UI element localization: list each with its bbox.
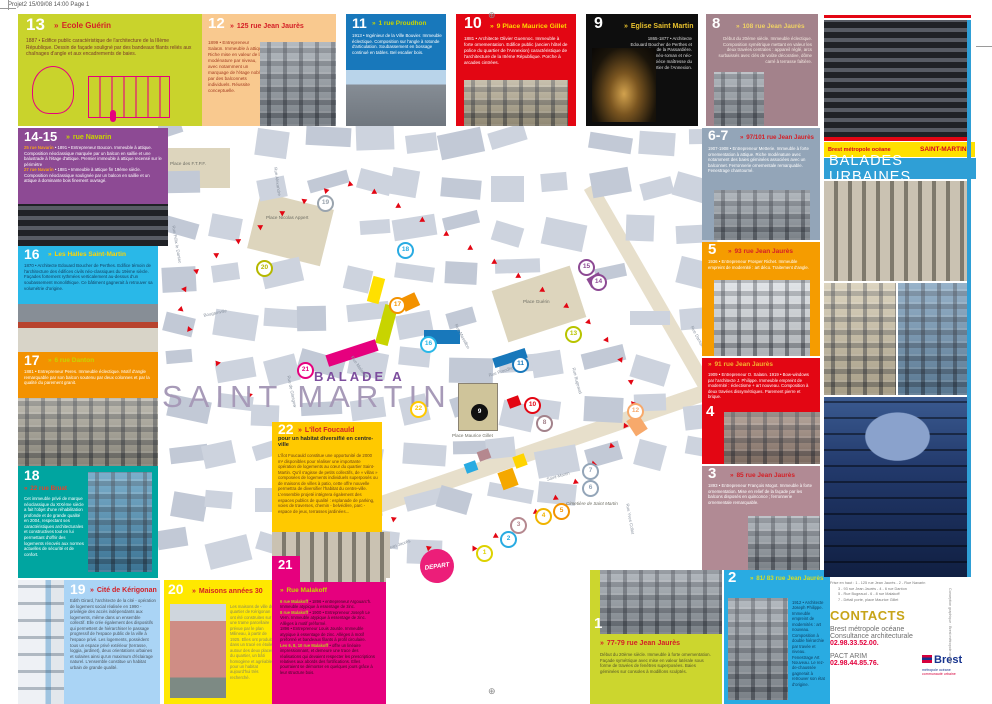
street-map: BALADE A SAINT MARTIN DEPART Rue Jean Ja… [158,125,724,587]
map-marker-1: 1 [476,545,493,562]
tile-title: » 22 rue Bruat [24,486,67,493]
building-photo [346,70,446,126]
tile-number: 6-7 [708,128,728,142]
tile-number: 4 [706,404,714,419]
map-marker-15: 15 [578,259,595,276]
map-building-block [491,176,524,202]
map-building-block [211,262,240,283]
map-building-block [360,219,391,235]
tile-title: » 125 rue Jean Jaurès [230,23,332,30]
route-arrow-icon [628,380,634,386]
map-building-block [437,127,485,161]
map-building-block [165,349,192,364]
map-building-block [402,443,446,467]
building-photo [18,580,64,704]
map-building-block [440,177,482,199]
route-arrow-icon [178,305,185,311]
series-label: BALADES URBAINES [829,153,976,185]
place-label: Cimetière de Saint Martin [566,501,624,507]
contacts-phone: 02.98.33.52.00. [830,640,913,647]
map-marker-19: 19 [317,195,334,212]
tile-5-93-rue-jean-jaures: 5 » 93 rue Jean Jaurès 1936 • Entreprene… [702,242,820,356]
title-marker-icon: » [624,23,628,30]
tile-11-1-rue-proudhon: 11 » 1 rue Proudhon 1913 • Ingénieur de … [346,14,446,126]
tile-17-6-rue-danton: 17 » 6 rue Danton 1881 • Entrepreneur Pe… [18,352,158,398]
tile-body: 1893 • Entrepreneur François Mogot. Imme… [708,483,814,505]
map-building-block [445,306,476,329]
tile-title: » Ecole Guérin [54,22,111,30]
map-marker-13: 13 [565,326,582,343]
tile-9-eglise-saint-martin: 9 » Eglise Saint Martin 1865-1877 • Arch… [586,14,698,126]
title-marker-icon: » [600,640,604,647]
tile-body: Début du 20ème siècle. Immeuble éclectiq… [716,36,812,65]
map-building-block [263,308,300,328]
building-photo [728,598,788,700]
title-marker-icon: » [490,23,494,30]
map-building-block [541,217,588,252]
tile-18-22-rue-bruat: 18 » 22 rue Bruat Cet immeuble privé de … [18,466,158,578]
map-marker-17: 17 [389,297,406,314]
tile-body: 1881 • Entrepreneur Peres. Immeuble écle… [24,369,154,386]
tile-title-text: L'îlot Foucauld [305,427,355,434]
series-banner: BALADES URBAINES [824,158,976,179]
title-marker-icon: » [740,134,743,141]
map-marker-10: 10 [524,397,541,414]
tile-3-85-rue-jean-jaures: 3 » 85 rue Jean Jaurès 1893 • Entreprene… [702,466,820,570]
tile-number: 21 [278,558,292,571]
tile-body: 1913 • Ingénieur de la Ville Bouvier. Im… [352,33,442,56]
building-photo [724,412,820,464]
map-marker-5: 5 [553,503,570,520]
tile-title: » Eglise Saint Martin [624,23,693,30]
map-marker-21: 21 [297,362,314,379]
place-label: Place des F.T.P.F. [170,161,230,167]
route-arrow-icon [348,181,355,188]
map-building-block [639,176,674,201]
tile-body: 1909 • Entrepreneur O. Salaün. 1919 • Bo… [708,372,814,400]
map-building-block [170,491,208,522]
tile-body: 25 rue Navarin • 1891 • Entrepreneur Bou… [24,145,162,184]
title-marker-icon: » [192,588,196,595]
tile-title-text: Maisons années 30 [199,588,263,595]
tile-title-text: 81/ 83 rue Jean Jaurès [756,575,823,582]
tile-20-maisons-annees-30: 20 » Maisons années 30 Les maisons de vi… [164,580,280,704]
tile-21-rue-malakoff: 21 » Rue Malakoff 6 rue Malakoff • 1896 … [272,556,386,704]
sketch-person-icon [110,110,116,122]
tile-body: L'îlot Foucauld constitue une opportunit… [278,453,378,514]
address-highlight: 6 rue Malakoff [280,599,308,604]
crop-mark [8,0,9,10]
route-arrow-icon [395,203,402,211]
building-photo [18,398,158,466]
tile-title: » Maisons années 30 [192,588,263,595]
title-marker-icon: » [48,251,52,258]
tile-body: 1887 • Edifice public caractéristique de… [26,38,196,58]
sketch-building-icon [88,76,170,118]
tile-number: 22 [278,422,294,436]
tile-4-91-rue-jean-jaures: » 91 rue Jean Jaurès 1909 • Entrepreneur… [702,358,820,464]
tile-title-text: Eglise Saint Martin [631,23,694,30]
tile-title-text: 1 rue Proudhon [378,20,426,27]
tile-title: » 85 rue Jean Jaurès [730,473,795,480]
tile-title-text: 77-79 rue Jean Jaurès [607,640,680,647]
title-marker-icon: » [24,485,28,492]
tile-title: » 108 rue Jean Jaurès [736,24,805,31]
tile-title: » 93 rue Jean Jaurès [728,249,793,256]
map-building-block [204,490,232,509]
address-highlight: 27 rue Navarin [24,167,54,172]
route-arrow-icon [515,273,522,281]
contacts-service: Consultance architecturale [830,633,913,640]
map-building-block [491,220,525,248]
tile-number: 19 [70,582,86,596]
tile-title-text: 85 rue Jean Jaurès [736,472,795,479]
map-marker-9: 9 [471,404,488,421]
map-building-block [530,350,563,378]
tile-body: 1907-1908 • Entrepreneur Metterie. Immeu… [708,146,814,174]
tile-title: » 6 rue Danton [48,358,94,365]
building-photo [714,280,810,356]
map-building-block [161,266,196,293]
tile-title: » 9 Place Maurice Gillet [490,23,567,30]
place-label: Place Maurice Gillet [452,433,496,439]
route-arrow-icon [371,189,378,197]
route-arrow-icon [603,337,611,345]
registration-mark-icon: ⊕ [488,10,496,21]
map-marker-20: 20 [256,260,273,277]
tile-number: 13 [26,16,45,33]
map-building-block [449,358,493,384]
map-building-block [630,311,670,325]
place-label: Place Nicolas Appert [266,215,316,221]
tile-title-text: 125 rue Jean Jaurès [237,23,304,30]
tile-subtitle: pour un habitat diversifié en centre-vil… [278,437,378,449]
tile-13-ecole-guerin: 13 » Ecole Guérin 1887 • Edifice public … [18,14,202,126]
route-arrow-icon [443,231,450,239]
tile-number: 11 [352,16,367,30]
red-rule [824,137,971,141]
tile-body: 1881 • Architecte Olivier Guennoc. Immeu… [464,36,568,66]
tile-body: Début du 20ème siècle. Immeuble à forte … [600,652,716,675]
building-photo [260,42,336,126]
map-building-block [356,125,395,151]
place-label: Place Guérin [523,299,583,305]
tile-title-text: 22 rue Bruat [30,485,67,492]
tile-body: 6 rue Malakoff • 1896 • entrepreneur Arg… [280,599,380,675]
route-arrow-icon [389,515,397,523]
address-highlight: Les 6, 8, 10 rue Malakoff [280,643,328,648]
street-label: Rue Yves Collet [625,503,635,535]
facade-photo [898,283,971,395]
map-building-block [444,261,477,285]
map-marker-7: 7 [582,463,599,480]
contacts-org2: PACT ARIM [830,653,913,660]
tile-number: 14-15 [24,130,57,143]
tile-12-125-rue-jean-jaures: 12 » 125 rue Jean Jaurès 1899 • Entrepre… [202,14,336,126]
tile-title: » L'îlot Foucauld [298,427,354,434]
map-building-block [638,131,676,156]
contacts-heading: CONTACTS [830,608,913,623]
map-building-block [204,534,252,570]
tile-22-ilot-foucauld: 22 » L'îlot Foucauld pour un habitat div… [272,422,382,532]
tile-body: Les maisons de ville du quartier de Kéri… [230,604,276,680]
tile-number: 8 [712,16,720,31]
tile-body: 1912 • Architecte Joseph Philippe. Immeu… [792,600,826,687]
title-marker-icon: » [280,587,284,594]
map-building-block [442,210,480,231]
tile-body: Edith Girard, l'architecte de la cité - … [70,598,156,671]
map-marker-2: 2 [500,531,517,548]
body-text: • offre un linéaire impressionnant, et d… [280,643,375,675]
contacts-block: CONTACTS Brest métropole océane Consulta… [830,608,913,667]
title-marker-icon: » [54,21,58,30]
tile-title: » 77-79 rue Jean Jaurès [600,640,680,647]
blue-edge [967,20,971,577]
shutters-photo [300,556,386,582]
sketch-tree-icon [32,66,74,114]
tile-title: » 97/101 rue Jean Jaurès [740,135,814,142]
map-building-block [158,527,188,550]
tile-number: 16 [24,247,40,261]
tile-number: 3 [708,466,716,481]
map-marker-14: 14 [590,274,607,291]
title-marker-icon: » [736,23,740,30]
tile-body: Cet immeuble privé de marque néoclassiqu… [24,496,84,557]
map-building-block [581,344,627,370]
map-building-block [306,126,352,147]
address-highlight: 25 rue Navarin [24,145,54,150]
map-marker-18: 18 [397,242,414,259]
title-marker-icon: » [230,23,234,30]
tile-1-77-79-rue-jean-jaures: 1 » 77-79 rue Jean Jaurès Début du 20ème… [590,570,722,704]
title-marker-icon: » [728,248,732,255]
contacts-org: Brest métropole océane [830,626,913,633]
tile-title-text: Cité de Kérigonan [97,587,157,594]
tile-title: » 81/ 83 rue Jean Jaurès [750,576,828,583]
title-marker-icon: » [66,134,70,141]
tile-title: » 1 rue Proudhon [372,21,426,28]
title-marker-icon: » [90,587,94,594]
route-arrow-icon [324,187,330,194]
facade-photo [824,181,971,281]
tile-16-les-halles-saint-martin: 16 » Les Halles Saint-Martin 1870 • Arch… [18,246,158,304]
contacts-phone2: 02.98.44.85.76. [830,660,913,667]
tile-title-text: Les Halles Saint-Martin [54,251,126,258]
tile-14-15-rue-navarin: 14-15 » rue Navarin 25 rue Navarin • 189… [18,128,168,204]
route-arrow-icon [213,251,220,259]
facade-photo [824,283,896,395]
tile-title-text: 93 rue Jean Jaurès [734,248,793,255]
tile-title-text: 6 rue Danton [54,357,94,364]
map-building-block [589,167,632,198]
tile-title-text: Ecole Guérin [62,21,111,30]
building-photo [88,472,152,572]
credit-line: 7 - Détail porte, place Maurice Gillet [830,598,960,604]
map-building-block [392,214,438,241]
market-halles-photo [18,304,158,352]
tile-2-81-83-rue-jean-jaures: 2 » 81/ 83 rue Jean Jaurès 1912 • Archit… [724,570,830,704]
tile-number: 10 [464,16,482,32]
tile-title: » rue Navarin [66,134,111,141]
print-header: Projet2 15/09/08 14:00 Page 1 [8,2,89,8]
address-highlight: 8 rue Malakoff [280,610,308,615]
tile-body: 1936 • Entrepreneur Prosper Richet. Imme… [708,259,814,270]
route-arrow-icon [467,245,474,253]
map-building-block [626,215,655,242]
map-building-block [394,262,435,282]
tile-number: 1 [594,616,602,631]
tile-number: 5 [708,242,716,257]
map-marker-4: 4 [535,508,552,525]
map-building-block [487,125,527,150]
map-building-block [629,354,670,387]
title-marker-icon: » [298,427,302,434]
route-arrow-icon [235,237,242,245]
tile-number: 20 [168,582,184,596]
map-building-block [297,306,326,332]
church-photo [592,48,656,122]
brest-logo: Brest métropole océane communauté urbain… [922,650,962,676]
tile-body: 1870 • Architecte Edouard Boucher de Per… [24,263,154,292]
title-marker-icon: » [750,575,754,582]
map-marker-11: 11 [512,356,529,373]
tile-number: 12 [208,16,225,31]
map-building-block [254,128,289,159]
building-photo [714,190,810,240]
tile-number: 17 [24,353,40,367]
map-building-block [540,172,567,192]
title-marker-icon: » [372,20,376,27]
map-building-block [389,167,420,198]
red-rule [824,15,971,18]
tile-body: 1899 • Entrepreneur Salaün. Immeuble à a… [208,40,266,94]
house-photo [170,604,226,698]
tile-title-text: rue Navarin [73,134,112,141]
tile-title-text: 97/101 rue Jean Jaurès [746,134,814,141]
tile-title-text: 9 Place Maurice Gillet [497,23,567,30]
map-building-block [633,439,667,471]
map-building-block [405,132,438,154]
title-marker-icon: » [48,357,52,364]
route-arrow-icon [585,319,593,327]
map-marker-3: 3 [510,517,527,534]
blue-door-photo [824,397,971,577]
tile-number: 2 [728,570,736,585]
map-building-block [343,265,374,293]
tile-title: » 91 rue Jean Jaurès [708,362,773,369]
title-marker-icon: » [708,361,712,368]
map-marker-6: 6 [582,480,599,497]
credits-block: Frise en haut : 1 - 125 rue Jean Jaurès … [830,581,960,604]
building-photo [600,570,722,634]
route-arrow-icon [617,357,625,364]
tile-title: » Les Halles Saint-Martin [48,252,126,259]
tile-title-text: Rue Malakoff [286,587,326,594]
map-marker-8: 8 [536,415,553,432]
tile-19-cite-de-kerigonan: 19 » Cité de Kérigonan Edith Girard, l'a… [18,580,160,704]
map-marker-16: 16 [420,336,437,353]
street-label: Rue Bugeaud [571,367,583,394]
tile-number: 18 [24,468,40,482]
building-photo [464,80,568,126]
logo-sub2: communauté urbaine [922,672,962,676]
map-marker-22: 22 [410,401,427,418]
tile-number: 9 [594,16,603,32]
building-photo [714,72,764,126]
balcony-photo [18,204,168,246]
tile-title-text: 108 rue Jean Jaurès [742,23,804,30]
map-building-block [588,132,633,155]
tile-8-108-rue-jean-jaures: 8 » 108 rue Jean Jaurès Début du 20ème s… [706,14,818,126]
facade-photo [824,20,971,138]
map-title-line2: SAINT MARTIN [162,379,452,415]
crop-mark [976,46,992,47]
body-text: 1896 • Entrepreneur Louis Jourde. Immeub… [280,626,366,642]
route-arrow-icon [491,533,498,541]
map-building-block [583,396,623,423]
brest-flag-icon [922,655,932,663]
tile-6-7-97-101-rue-jean-jaures: 6-7 » 97/101 rue Jean Jaurès 1907-1908 •… [702,128,820,240]
side-credit: Conception graphique : Brest métropole o… [948,588,952,664]
registration-mark-icon: ⊕ [488,686,496,697]
tile-title-text: 91 rue Jean Jaurès [714,361,773,368]
map-building-block [436,485,473,515]
map-marker-12: 12 [627,403,644,420]
title-marker-icon: » [730,472,734,479]
tile-title: » Cité de Kérigonan [90,587,157,594]
map-building-block [201,440,236,469]
tile-10-place-maurice-gillet: 10 » 9 Place Maurice Gillet 1881 • Archi… [456,14,576,126]
tile-title: » Rue Malakoff [280,588,327,595]
building-photo [748,516,820,570]
